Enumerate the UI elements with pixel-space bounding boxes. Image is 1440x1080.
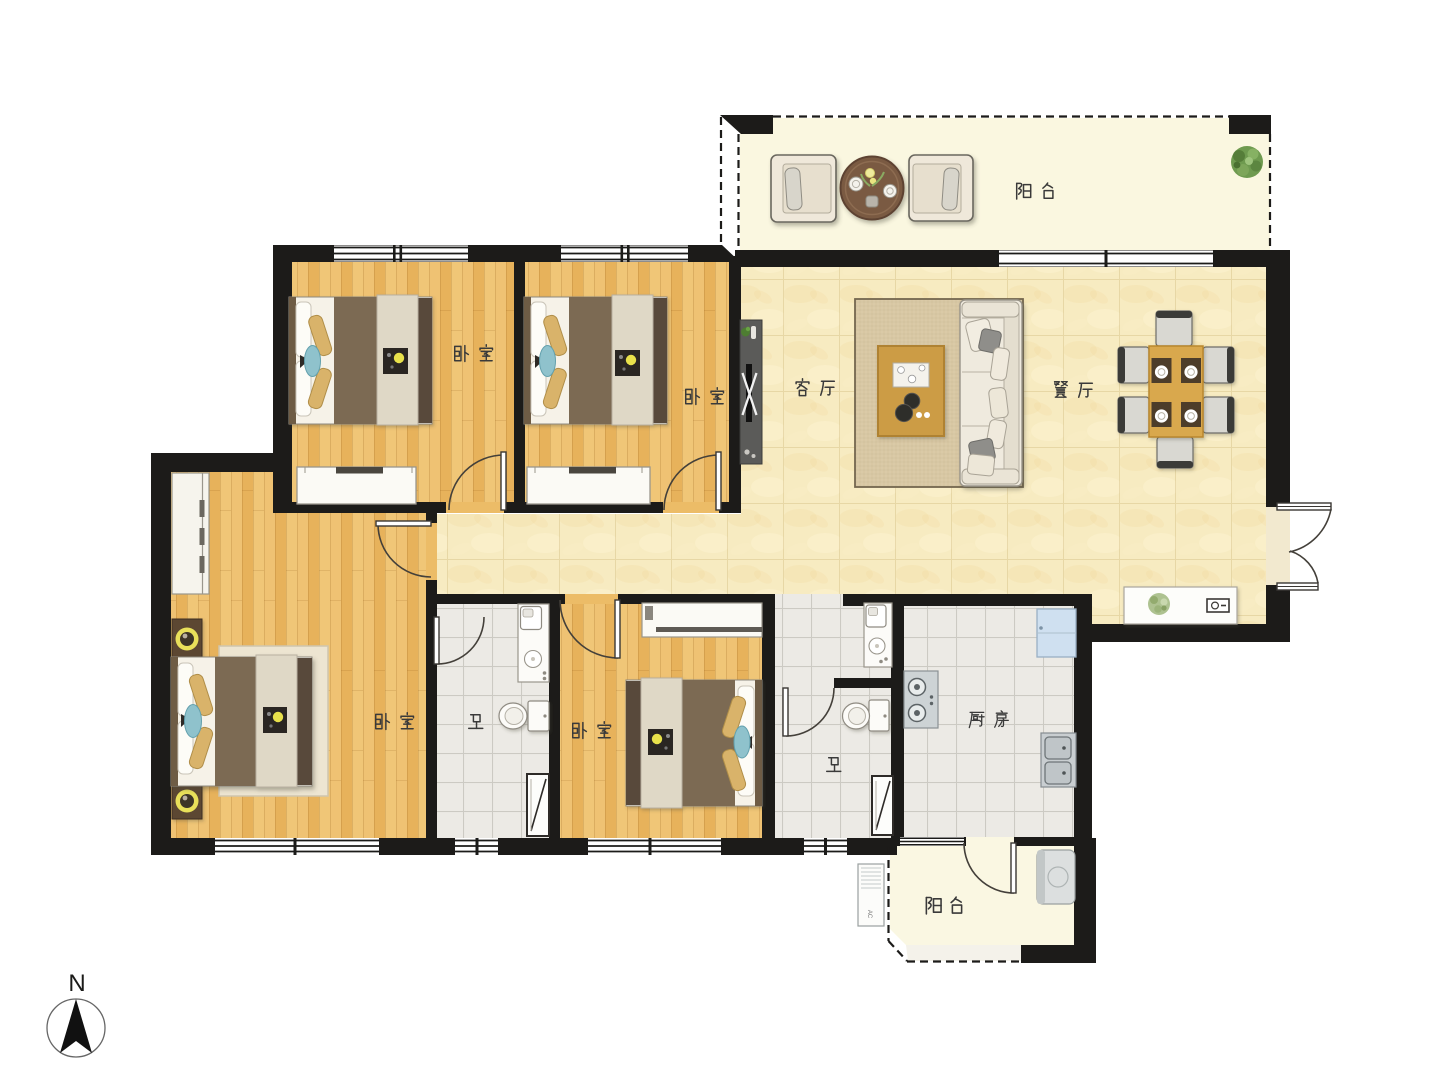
svg-text:AC: AC [866, 910, 872, 919]
svg-text:N: N [68, 970, 85, 997]
